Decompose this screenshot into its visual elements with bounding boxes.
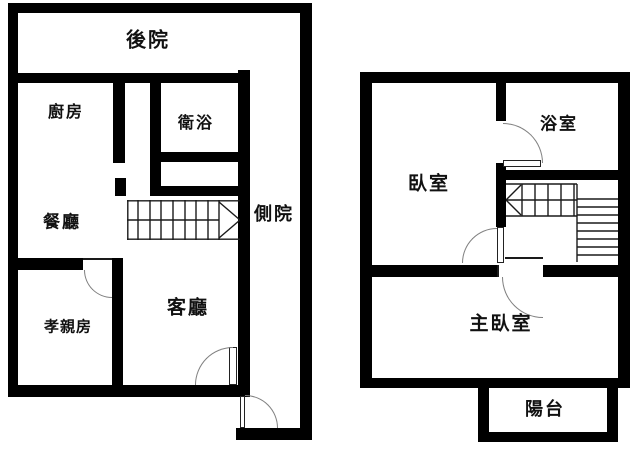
wall2-master-top-left	[360, 265, 497, 277]
wall2-outer-bottom	[360, 378, 630, 388]
bedroom-door-leaf	[497, 227, 504, 263]
parents-room-door-leaf	[83, 258, 112, 260]
balcony-wall-right	[607, 388, 618, 442]
floorplan-canvas: 後院 廚房 衛浴 餐廳 側院 孝親房 客廳	[0, 0, 640, 454]
dining-room-label: 餐廳	[43, 208, 81, 233]
master-bedroom-label: 主臥室	[469, 309, 532, 336]
wall2-outer-top	[360, 72, 630, 83]
wall-bath-left	[150, 83, 161, 196]
wall-backyard-bottom	[8, 73, 250, 83]
bathroom2-label: 浴室	[540, 110, 578, 135]
wall-kitchen-divider	[113, 83, 125, 163]
bedroom-label: 臥室	[408, 169, 450, 196]
bathroom2-door-arc	[503, 123, 543, 163]
wall-parents-top	[8, 258, 83, 270]
living-room-label: 客廳	[167, 293, 209, 320]
balcony-wall-bottom	[478, 432, 618, 442]
side-yard-door-arc	[245, 395, 278, 428]
bedroom-door-arc	[462, 228, 497, 263]
living-room-door-arc	[195, 347, 233, 385]
wall-outer-left	[8, 3, 18, 397]
wall-bottom-main	[8, 385, 250, 397]
balcony-label: 陽台	[525, 395, 565, 421]
wall-closet-bottom	[150, 186, 250, 196]
side-yard-label: 側院	[254, 200, 294, 226]
wall-bath-bottom	[161, 152, 240, 162]
wall-stair-stub	[115, 178, 126, 196]
wall2-stair-top	[496, 170, 630, 180]
kitchen-label: 廚房	[48, 98, 84, 122]
staircase-second-floor-icon	[506, 180, 618, 265]
wall-corridor-bottom	[236, 428, 312, 440]
parents-room-door-arc	[84, 270, 112, 298]
wall2-outer-left	[360, 72, 372, 388]
wall-living-divider	[112, 258, 123, 390]
staircase-first-floor-icon	[127, 200, 240, 240]
master-door-jamb	[497, 265, 499, 277]
wall-outer-right	[300, 3, 312, 440]
wall-outer-top	[8, 3, 312, 13]
bathroom1-label: 衛浴	[178, 109, 214, 133]
wall2-master-top-right	[543, 265, 630, 277]
parents-room-label: 孝親房	[44, 316, 92, 337]
wall2-divider-upper	[496, 83, 506, 121]
wall2-outer-right	[618, 72, 630, 388]
backyard-label: 後院	[126, 24, 170, 53]
